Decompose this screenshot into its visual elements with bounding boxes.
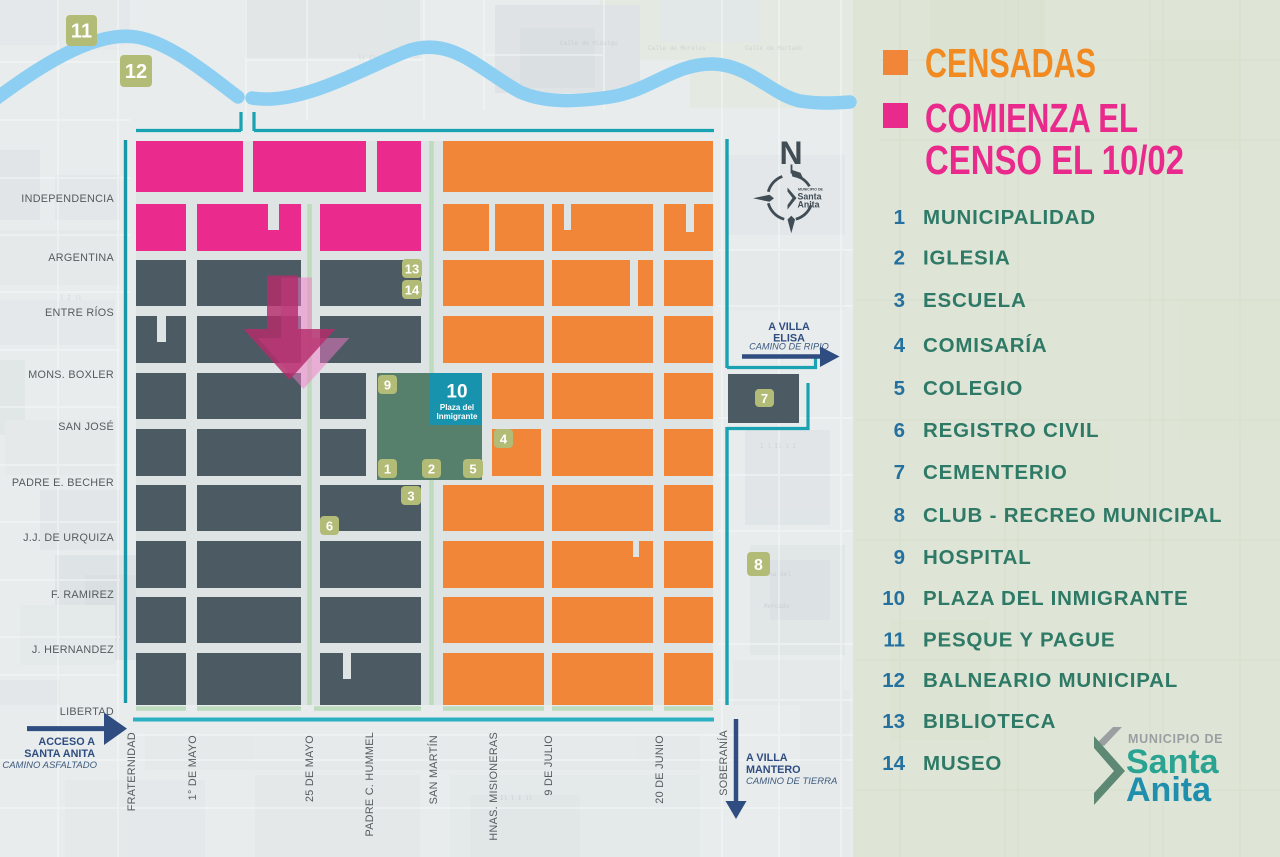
svg-text:Anita: Anita — [798, 200, 820, 210]
svg-text:COLEGIO: COLEGIO — [923, 377, 1023, 400]
svg-text:12: 12 — [125, 61, 147, 83]
svg-text:HOSPITAL: HOSPITAL — [923, 546, 1032, 569]
svg-text:PESQUE Y PAGUE: PESQUE Y PAGUE — [923, 629, 1115, 652]
svg-text:PLAZA DEL INMIGRANTE: PLAZA DEL INMIGRANTE — [923, 587, 1188, 610]
svg-text:13: 13 — [405, 262, 419, 277]
svg-text:4: 4 — [894, 334, 906, 357]
svg-text:Il l I ll: Il l I ll — [500, 795, 533, 802]
svg-text:CLUB - RECREO MUNICIPAL: CLUB - RECREO MUNICIPAL — [923, 504, 1222, 527]
svg-text:4: 4 — [500, 432, 508, 447]
svg-text:CENSADAS: CENSADAS — [925, 40, 1096, 86]
svg-text:MANTERO: MANTERO — [746, 764, 801, 776]
svg-text:10: 10 — [882, 587, 905, 610]
svg-text:IGLESIA: IGLESIA — [923, 247, 1011, 270]
svg-text:MONS. BOXLER: MONS. BOXLER — [28, 369, 114, 381]
svg-text:14: 14 — [882, 752, 905, 775]
svg-text:SOBERANÍA: SOBERANÍA — [717, 730, 730, 796]
svg-text:MUNICIPALIDAD: MUNICIPALIDAD — [923, 206, 1096, 229]
svg-text:CAMINO DE TIERRA: CAMINO DE TIERRA — [746, 776, 837, 787]
svg-text:A VILLA: A VILLA — [746, 752, 788, 764]
svg-text:Plaza del: Plaza del — [440, 403, 474, 412]
svg-text:Calle de Hurtado: Calle de Hurtado — [745, 45, 803, 52]
svg-text:7: 7 — [894, 461, 905, 484]
svg-text:INDEPENDENCIA: INDEPENDENCIA — [21, 193, 114, 205]
svg-text:8: 8 — [754, 557, 763, 574]
svg-text:CAMINO ASFALTADO: CAMINO ASFALTADO — [2, 760, 97, 771]
svg-text:8: 8 — [894, 504, 905, 527]
svg-text:3: 3 — [407, 489, 414, 504]
svg-text:MUSEO: MUSEO — [923, 752, 1002, 775]
svg-text:SAN MARTÍN: SAN MARTÍN — [427, 735, 440, 804]
svg-text:CEMENTERIO: CEMENTERIO — [923, 461, 1068, 484]
svg-text:Inmigrante: Inmigrante — [437, 412, 478, 421]
svg-text:FRATERNIDAD: FRATERNIDAD — [126, 732, 138, 811]
svg-text:CENSO EL 10/02: CENSO EL 10/02 — [925, 137, 1184, 183]
svg-text:11: 11 — [883, 629, 905, 652]
svg-text:ACCESO A: ACCESO A — [38, 736, 95, 748]
svg-text:l I ll: l I ll — [60, 295, 82, 302]
svg-text:COMISARÍA: COMISARÍA — [923, 334, 1048, 357]
svg-text:PADRE C. HUMMEL: PADRE C. HUMMEL — [364, 732, 376, 836]
svg-text:6: 6 — [326, 519, 333, 534]
svg-text:12: 12 — [882, 669, 905, 692]
svg-text:1: 1 — [384, 462, 391, 477]
svg-text:6: 6 — [894, 419, 905, 442]
svg-text:13: 13 — [882, 710, 905, 733]
svg-text:2: 2 — [428, 462, 435, 477]
svg-text:3: 3 — [894, 289, 905, 312]
svg-text:PADRE E. BECHER: PADRE E. BECHER — [12, 477, 114, 489]
svg-text:BIBLIOTECA: BIBLIOTECA — [923, 710, 1056, 733]
svg-text:BALNEARIO MUNICIPAL: BALNEARIO MUNICIPAL — [923, 669, 1178, 692]
svg-text:14: 14 — [405, 283, 420, 298]
svg-text:Calle de Hidalgo: Calle de Hidalgo — [560, 40, 618, 47]
svg-text:2: 2 — [894, 247, 905, 270]
svg-text:25 DE MAYO: 25 DE MAYO — [304, 735, 316, 802]
svg-text:A VILLA: A VILLA — [768, 321, 810, 333]
svg-text:1° DE MAYO: 1° DE MAYO — [187, 735, 199, 800]
svg-text:Anita: Anita — [1126, 771, 1212, 809]
svg-text:ESCUELA: ESCUELA — [923, 289, 1027, 312]
svg-text:11: 11 — [71, 21, 92, 43]
svg-text:5: 5 — [894, 377, 905, 400]
svg-text:20 DE JUNIO: 20 DE JUNIO — [654, 735, 666, 804]
svg-text:F. RAMIREZ: F. RAMIREZ — [51, 589, 114, 601]
svg-text:ARGENTINA: ARGENTINA — [48, 252, 114, 264]
svg-text:Mercado: Mercado — [764, 603, 790, 610]
svg-text:REGISTRO CIVIL: REGISTRO CIVIL — [923, 419, 1099, 442]
svg-text:I l Il l I: I l Il l I — [760, 443, 796, 450]
svg-text:J. HERNANDEZ: J. HERNANDEZ — [32, 644, 114, 656]
svg-text:10: 10 — [446, 382, 467, 403]
svg-text:9: 9 — [894, 546, 905, 569]
svg-text:1: 1 — [894, 206, 905, 229]
svg-text:COMIENZA EL: COMIENZA EL — [925, 95, 1138, 141]
svg-text:ENTRE RÍOS: ENTRE RÍOS — [45, 306, 114, 319]
svg-text:9: 9 — [384, 378, 391, 393]
svg-text:CAMINO DE RIPIO: CAMINO DE RIPIO — [749, 342, 829, 352]
svg-text:SANTA ANITA: SANTA ANITA — [24, 748, 95, 760]
svg-text:9 DE JULIO: 9 DE JULIO — [543, 735, 555, 796]
svg-text:J.J. DE URQUIZA: J.J. DE URQUIZA — [23, 532, 114, 544]
svg-text:HNAS. MISIONERAS: HNAS. MISIONERAS — [488, 732, 500, 841]
svg-text:Calle de Morelos: Calle de Morelos — [648, 45, 706, 52]
svg-text:7: 7 — [761, 391, 768, 406]
svg-text:SAN JOSÉ: SAN JOSÉ — [58, 420, 114, 433]
svg-text:5: 5 — [469, 462, 476, 477]
